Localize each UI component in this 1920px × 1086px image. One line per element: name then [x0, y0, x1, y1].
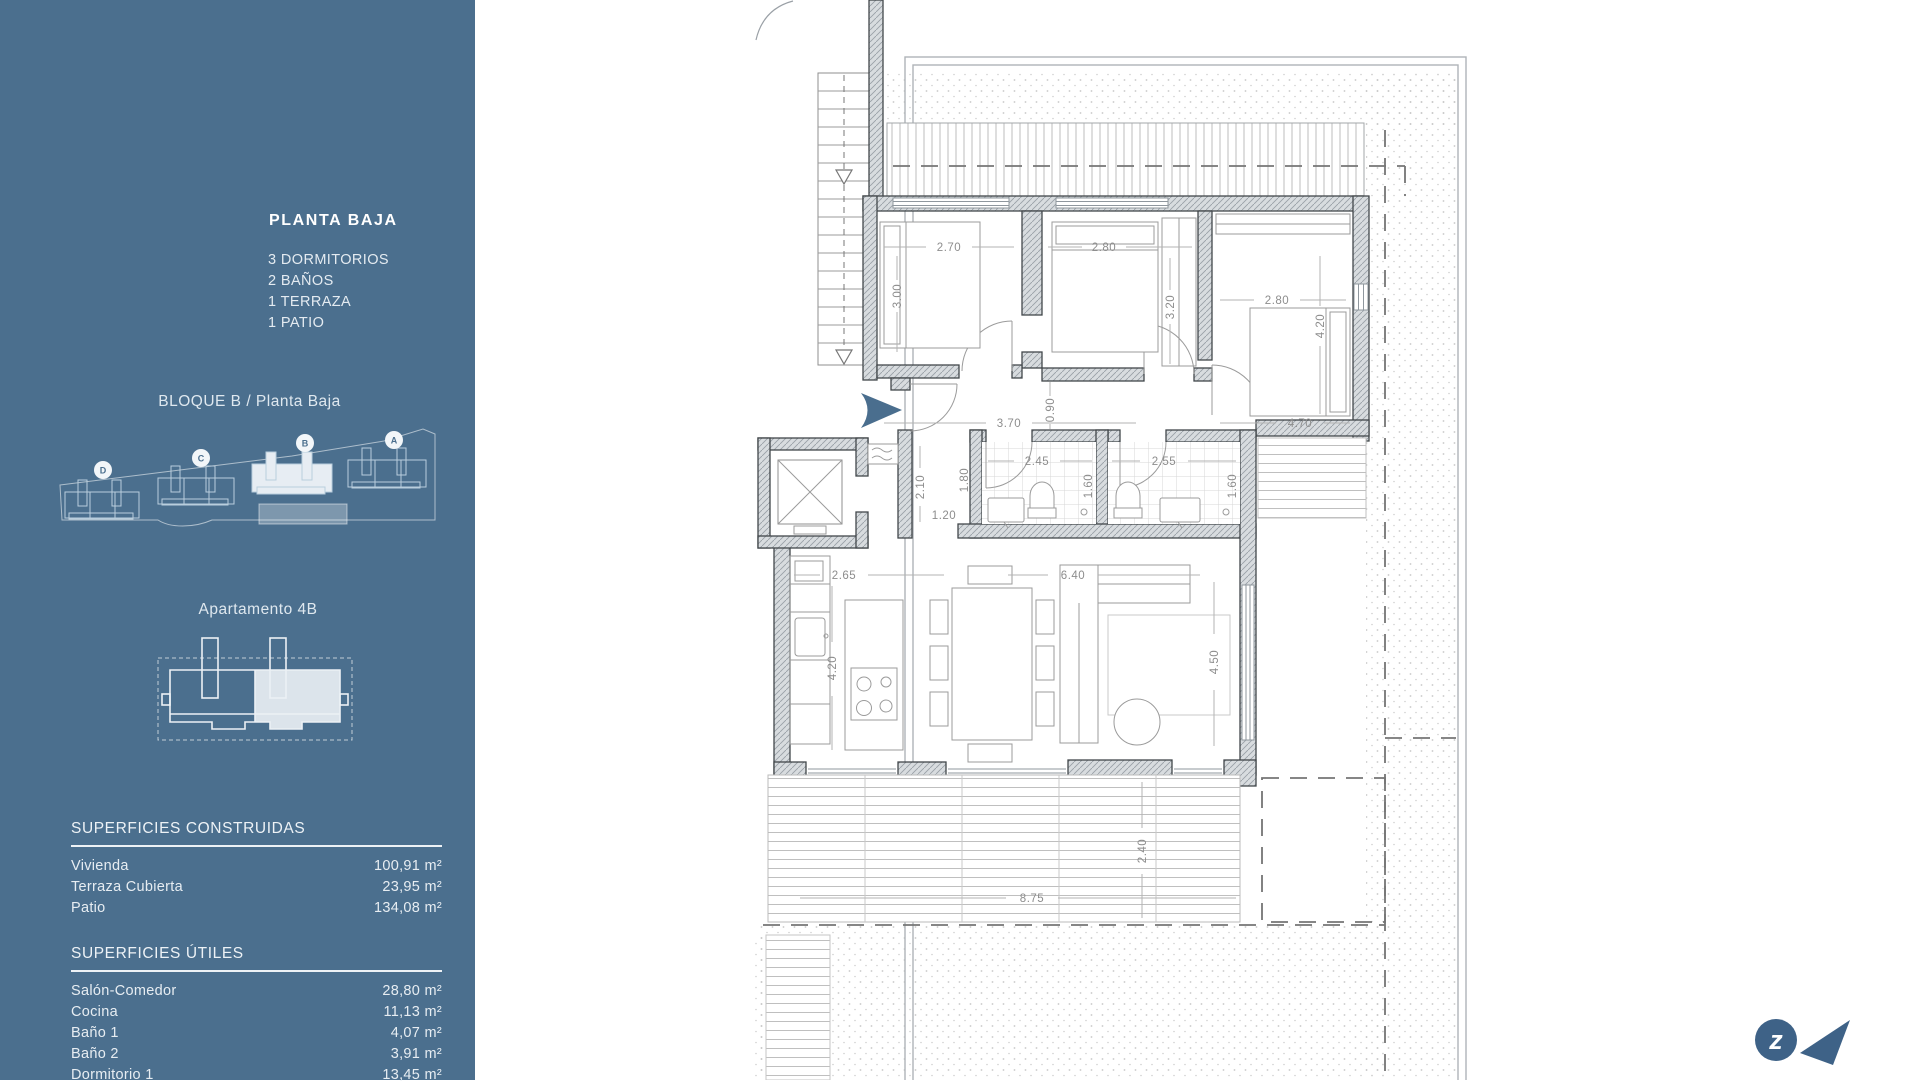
row-value: 100,91 m² — [374, 856, 442, 877]
logo-letter: z — [1768, 1025, 1783, 1055]
dim-living-width: 6.40 — [1061, 570, 1085, 582]
row-label: Terraza Cubierta — [71, 877, 183, 898]
dim-bedroom3-width: 2.80 — [1265, 295, 1289, 307]
feature-bedrooms: 3 DORMITORIOS — [268, 250, 389, 271]
dim-terrace-width: 8.75 — [1020, 893, 1044, 905]
dim-terrace-depth: 2.40 — [1137, 839, 1149, 863]
row-label: Patio — [71, 898, 106, 919]
surfaces-useful-heading: SUPERFICIES ÚTILES — [71, 945, 442, 972]
dim-entry-width: 1.20 — [932, 510, 956, 522]
pergola-band — [887, 123, 1405, 200]
dim-bedroom2-width: 2.80 — [1092, 242, 1116, 254]
site-terrain-outline — [60, 429, 435, 526]
table-row: Baño 1 4,07 m² — [71, 1023, 442, 1044]
logo-arrow-icon — [1800, 1020, 1850, 1065]
feature-list: 3 DORMITORIOS 2 BAÑOS 1 TERRAZA 1 PATIO — [268, 250, 389, 334]
feature-baths: 2 BAÑOS — [268, 271, 389, 292]
elevator — [778, 460, 842, 534]
dim-kitchen-depth: 4.20 — [827, 656, 839, 680]
surfaces-useful-section: SUPERFICIES ÚTILES Salón-Comedor 28,80 m… — [71, 945, 442, 1086]
row-value: 13,45 m² — [382, 1065, 442, 1086]
dim-hall-right: 4.70 — [1288, 418, 1312, 430]
dim-hall-mid: 0.90 — [1045, 398, 1057, 422]
dim-bath1-width: 2.45 — [1025, 456, 1049, 468]
row-label: Dormitorio 1 — [71, 1065, 154, 1086]
feature-terrace: 1 TERRAZA — [268, 292, 389, 313]
surfaces-built-section: SUPERFICIES CONSTRUIDAS Vivienda 100,91 … — [71, 820, 442, 919]
row-label: Cocina — [71, 1002, 118, 1023]
table-row: Baño 2 3,91 m² — [71, 1044, 442, 1065]
block-label: BLOQUE B / Planta Baja — [52, 393, 447, 411]
dim-bedroom3-depth: 4.20 — [1315, 314, 1327, 338]
row-value: 4,07 m² — [391, 1023, 442, 1044]
living-furniture — [1060, 565, 1230, 745]
side-deck — [1258, 438, 1366, 518]
floor-plan: 2.70 3.00 2.80 3.20 2.80 4.20 3.70 0.90 … — [450, 0, 1920, 1080]
site-badge-a-letter: A — [391, 436, 398, 446]
dim-bedroom1-depth: 3.00 — [892, 284, 904, 308]
feature-patio: 1 PATIO — [268, 313, 389, 334]
table-row: Vivienda 100,91 m² — [71, 856, 442, 877]
apartment-highlight — [255, 670, 340, 729]
dim-hall-left: 3.70 — [997, 418, 1021, 430]
row-value: 134,08 m² — [374, 898, 442, 919]
surfaces-built-heading: SUPERFICIES CONSTRUIDAS — [71, 820, 442, 847]
table-row: Patio 134,08 m² — [71, 898, 442, 919]
dining-furniture — [930, 566, 1054, 762]
site-plan-map: D C B A — [52, 422, 447, 547]
site-building-d — [65, 480, 139, 519]
row-value: 23,95 m² — [382, 877, 442, 898]
dim-living-depth: 4.50 — [1209, 650, 1221, 674]
dim-entry-depth: 2.10 — [915, 475, 927, 499]
site-badge-b-letter: B — [302, 439, 309, 449]
site-badge-d-letter: D — [100, 466, 107, 476]
dim-kitchen-width: 2.65 — [832, 570, 856, 582]
info-sidebar: PLANTA BAJA 3 DORMITORIOS 2 BAÑOS 1 TERR… — [0, 0, 475, 1080]
row-label: Vivienda — [71, 856, 129, 877]
dim-bath2-width: 2.55 — [1152, 456, 1176, 468]
dim-bedroom1-width: 2.70 — [937, 242, 961, 254]
row-value: 3,91 m² — [391, 1044, 442, 1065]
bedroom3-furniture — [1216, 214, 1350, 416]
dim-bath2-depth2: 1.60 — [1227, 474, 1239, 498]
kitchen-furniture — [790, 556, 903, 750]
floor-title: PLANTA BAJA — [269, 212, 398, 230]
row-label: Salón-Comedor — [71, 981, 176, 1002]
dim-bedroom2-depth: 3.20 — [1165, 295, 1177, 319]
site-pool — [259, 504, 347, 524]
dim-bath1-depth: 1.80 — [959, 468, 971, 492]
row-label: Baño 1 — [71, 1023, 119, 1044]
row-label: Baño 2 — [71, 1044, 119, 1065]
site-building-c — [158, 466, 234, 505]
table-row: Terraza Cubierta 23,95 m² — [71, 877, 442, 898]
approach-curve — [756, 1, 793, 40]
bedroom2-furniture — [1052, 218, 1196, 366]
table-row: Cocina 11,13 m² — [71, 1002, 442, 1023]
row-value: 11,13 m² — [383, 1002, 442, 1023]
entry-shelf — [868, 444, 898, 464]
compass-logo: z — [1740, 1000, 1880, 1080]
row-value: 28,80 m² — [382, 981, 442, 1002]
table-row: Dormitorio 1 13,45 m² — [71, 1065, 442, 1086]
site-badge-c-letter: C — [198, 454, 205, 464]
apartment-diagram — [150, 626, 360, 748]
apartment-label: Apartamento 4B — [56, 601, 460, 619]
dim-bath1-depth2: 1.60 — [1083, 474, 1095, 498]
site-building-b-highlighted — [252, 452, 332, 494]
site-building-a — [348, 448, 426, 488]
table-row: Salón-Comedor 28,80 m² — [71, 981, 442, 1002]
